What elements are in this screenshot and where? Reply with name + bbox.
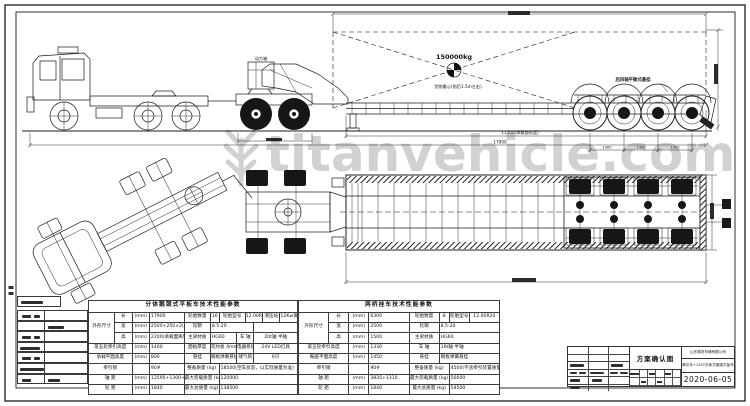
spec-cell: 高 — [115, 333, 132, 343]
spec-cell: 90# — [369, 364, 409, 374]
spec-cell: 长 — [115, 312, 132, 322]
rear-suspension-note: 后四轴平衡式悬挂 — [615, 76, 651, 83]
spec-cell: 54500 — [449, 385, 499, 395]
spec-cell: 钢板弹簧悬挂 — [439, 353, 499, 363]
spec-cell: 外形尺寸 — [299, 312, 329, 343]
spec-cell: 120000 — [219, 374, 297, 384]
rear-bogie-plan — [564, 175, 731, 250]
company-name: 山东泰坦车辆有限公司 — [682, 347, 734, 359]
drawing-date: 2020-06-05 — [682, 373, 734, 386]
spec-cell: 轮 距 — [89, 385, 133, 395]
spec-cell: 90# — [149, 364, 184, 374]
spec-cell: 牵引销 — [89, 364, 133, 374]
spec-cell: 牵引销 — [299, 364, 349, 374]
spec-cell: 3835+1310 — [369, 374, 409, 384]
spec-cell: 6只 — [254, 353, 298, 363]
spec-cell: 50000 — [449, 374, 499, 384]
spec-cell: 整备质量 (kg) — [184, 364, 219, 374]
spec-cell: 4500(不含牵引装置质量) — [449, 364, 499, 374]
revision-row — [17, 310, 88, 321]
spec-cell: 1400 — [149, 343, 184, 353]
engineering-drawing-page: 动力箱 后四轴平衡式悬挂 — [0, 0, 750, 406]
spec-cell: 2500 — [369, 322, 409, 332]
dolly-plan — [246, 170, 346, 254]
spec-cell: (mm) — [132, 343, 149, 353]
spec-cell: 1840 — [149, 385, 184, 395]
title-block-grid-row — [568, 362, 629, 370]
payload-label: 150000kg — [436, 53, 472, 61]
spec-cell: 18500(空车状态，以实际质量为准) — [219, 364, 297, 374]
tractor-side — [27, 47, 208, 130]
spec-cell: 轮胎型号 — [449, 312, 469, 322]
title-block-cell — [648, 370, 656, 378]
spec-cell: HG60 — [439, 333, 499, 343]
spec-cell: 主梁材质 — [184, 333, 210, 343]
spec-cell: 承载平面高度 — [89, 353, 133, 363]
spec-cell: (mm) — [349, 374, 369, 384]
spec-cell: HG60 — [210, 333, 236, 343]
title-block-cell — [656, 370, 664, 378]
spec-cell: (mm) — [132, 385, 149, 395]
title-block-grid-row — [568, 347, 629, 355]
spec-cell: (mm) — [132, 353, 149, 363]
spec-cell: 轴 距 — [89, 374, 133, 384]
spec-cell: 最大总质量 (kg) — [409, 385, 449, 395]
spec-table-detachable-gooseneck: 分体鹅颈式平板车技术性能参数外形尺寸长(mm)17900轮胎数量16轮胎型号12… — [88, 300, 298, 395]
spec-cell: 1330 — [369, 343, 409, 353]
spec-cell: 高 — [329, 333, 349, 343]
cg-note: 货物重心(前后1.5m左右) — [434, 83, 482, 90]
title-block-right: 山东泰坦车辆有限公司 牵引车+120T分体式鹅颈平板车 2020-06-05 — [682, 347, 734, 386]
spec-cell: (mm) — [349, 322, 369, 332]
revision-row — [17, 352, 88, 363]
drawing-title: 方案确认图 — [630, 347, 681, 370]
gooseneck-side — [262, 64, 348, 104]
spec-cell: (mm) — [349, 333, 369, 343]
spec-cell: 第五轮牵引高度 — [89, 343, 133, 353]
revision-row — [17, 363, 88, 374]
title-block-cell — [640, 378, 648, 386]
spec-cell: 面板厚度 — [184, 343, 210, 353]
spec-cell: 8 — [439, 312, 449, 322]
spec-cell: 储气筒 — [236, 353, 253, 363]
spec-cell: (mm) — [132, 374, 149, 384]
spec-cell: 24V LED灯具 — [254, 343, 298, 353]
spec-cell: 17900 — [149, 312, 184, 322]
title-block-cell — [673, 378, 681, 386]
spec-cell: 钢板弹簧悬挂 — [210, 353, 236, 363]
side-view: 动力箱 后四轴平衡式悬挂 — [22, 11, 723, 152]
spec-cell: (mm) — [132, 322, 149, 332]
spec-cell: 整备质量 (kg) — [409, 364, 449, 374]
spec-cell: (mm) — [349, 343, 369, 353]
spec-cell: 车 轴 — [236, 333, 253, 343]
title-block-revision-grid — [568, 347, 630, 386]
spec-cell: 轮 距 — [299, 385, 349, 395]
spec-cell — [349, 364, 369, 374]
spec-cell: 12Kw发电机组 — [280, 312, 298, 322]
axle-spacing-dim: 1300 — [602, 146, 612, 150]
spec-cell: 轴 距 — [299, 374, 349, 384]
spec-cell: 两桥挂车技术性能参数 — [299, 301, 500, 313]
revision-row — [17, 331, 88, 342]
title-block-cell — [673, 370, 681, 378]
title-block: 方案确认图 山东泰坦车辆有限公司 牵引车+120T分体式鹅颈平板车 2020-0… — [567, 346, 735, 387]
spec-cell: 1840 — [369, 385, 409, 395]
spec-cell: 20t轴 半轴 — [254, 333, 298, 343]
title-block-cell — [640, 370, 648, 378]
title-block-cell — [648, 378, 656, 386]
spec-cell: 138500 — [219, 385, 297, 395]
spec-cell: 第五轮牵引高度 — [299, 343, 349, 353]
spec-cell — [254, 322, 298, 332]
overall-length-dim: 17900 — [493, 140, 507, 145]
title-block-cell — [656, 378, 664, 386]
axle-spacing-dim: 1300 — [670, 146, 680, 150]
spec-cell: (mm) — [349, 312, 369, 322]
spec-cell: 鞍座平面高度 — [299, 353, 349, 363]
deck-length-dim: 11500(承载面长度) — [501, 129, 539, 136]
spec-cell: 2200(承载面离地600mm) — [149, 333, 184, 343]
spec-cell: (mm) — [349, 353, 369, 363]
spec-cell: 宽 — [329, 322, 349, 332]
title-block-grid-row — [568, 377, 629, 385]
spec-cell: 轮辋 — [184, 322, 210, 332]
rear-bogie-side: 后四轴平衡式悬挂 — [571, 76, 716, 130]
project-name: 牵引车+120T分体式鹅颈平板车 — [682, 359, 734, 373]
spec-cell: 12595+1300+1300+1300 — [149, 374, 184, 384]
spec-cell: 800 — [149, 353, 184, 363]
title-block-grid-row — [568, 355, 629, 363]
spec-cell: 最大装载质量 (kg) — [184, 374, 219, 384]
title-block-cell — [630, 378, 640, 386]
tractor-plan — [21, 133, 256, 315]
spec-cell: 悬挂 — [409, 353, 439, 363]
spec-cell: (mm) — [132, 333, 149, 343]
spec-cell: 主梁材质 — [409, 333, 439, 343]
spec-cell: 12.00R20 — [245, 312, 262, 322]
spec-cell: 分体鹅颈式平板车技术性能参数 — [89, 301, 298, 313]
spec-cell: 电器系统 — [236, 343, 253, 353]
title-block-grid-row — [568, 385, 629, 392]
spec-cell: (mm) — [349, 385, 369, 395]
revision-row — [17, 342, 88, 353]
spec-cell: 车 轴 — [409, 343, 439, 353]
dimensions-plan — [344, 175, 717, 284]
spec-cell: 轮胎型号 — [219, 312, 245, 322]
spec-cell: 轮辋 — [409, 322, 439, 332]
spec-cell: 6300 — [369, 312, 409, 322]
spec-cell: 12.00R20 — [469, 312, 499, 322]
spec-cell: 长 — [329, 312, 349, 322]
revision-row — [17, 321, 88, 332]
spec-table-two-axle-dolly: 两桥挂车技术性能参数外形尺寸长(mm)6300轮胎数量8轮胎型号12.00R20… — [298, 300, 500, 395]
title-block-grid-row — [568, 370, 629, 378]
spec-cell: (mm) — [132, 312, 149, 322]
spec-cell: 8.5-20 — [210, 322, 254, 332]
spec-cell: 最大总质量 (kg) — [184, 385, 219, 395]
axle-spacing-dim: 1300 — [636, 146, 646, 150]
spec-cell: 轮胎数量 — [184, 312, 210, 322]
revision-strip — [17, 296, 88, 386]
spec-cell: 2500+250×2(外扩宽) — [149, 322, 184, 332]
title-block-cell — [665, 378, 673, 386]
title-block-scale-grid — [630, 370, 681, 386]
title-block-cell — [665, 370, 673, 378]
spec-cell: 8.5-20 — [439, 322, 499, 332]
spec-cell: 最大装载质量 (kg) — [409, 374, 449, 384]
title-block-cell — [630, 370, 640, 378]
spec-cell: 16t轴 半轴 — [439, 343, 499, 353]
revision-row — [17, 374, 88, 385]
spec-cell: 16 — [210, 312, 219, 322]
spec-cell: 1450 — [369, 353, 409, 363]
spec-cell: 外形尺寸 — [89, 312, 115, 343]
power-box-label: 动力箱 — [255, 55, 268, 62]
spec-cell: 液压站 — [263, 312, 280, 322]
spec-cell: 1500 — [369, 333, 409, 343]
spec-cell: 花纹板 4mm — [210, 343, 236, 353]
spec-cell: 宽 — [115, 322, 132, 332]
spec-cell — [132, 364, 149, 374]
title-block-center: 方案确认图 — [630, 347, 682, 386]
spec-cell: 悬挂 — [184, 353, 210, 363]
spec-cell: 轮胎数量 — [409, 312, 439, 322]
revision-strip-header — [17, 296, 61, 307]
plan-view — [21, 133, 731, 315]
